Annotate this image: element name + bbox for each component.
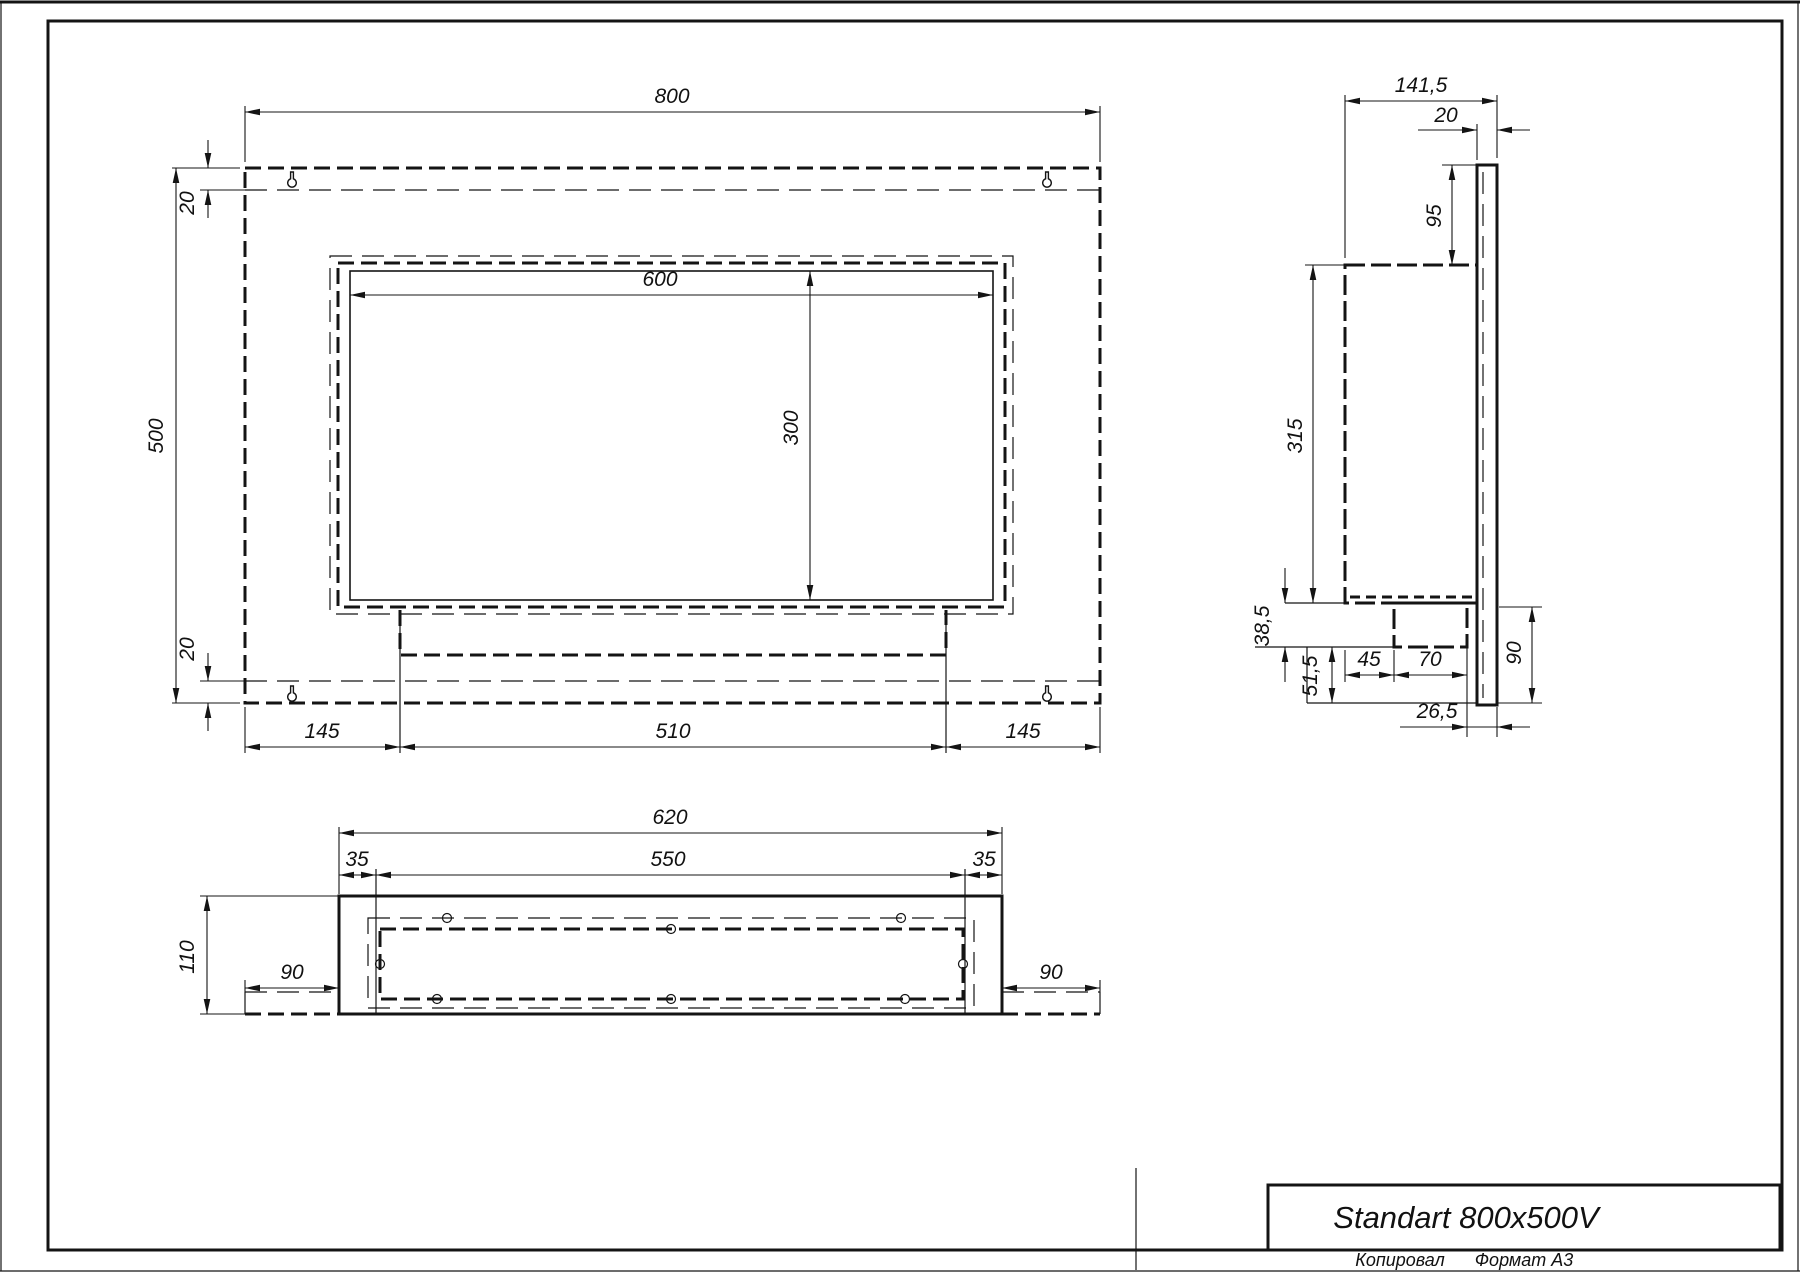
sheet-borders [0, 2, 1800, 1271]
side-dim-tray-depth: 70 [1418, 648, 1442, 671]
bottom-dim-90-lines [245, 980, 1100, 992]
side-dim-back-offset: 26,5 [1416, 700, 1458, 723]
side-dim-20-lines [1418, 124, 1530, 160]
technical-drawing: 800 500 20 20 600 300 [0, 0, 1800, 1273]
screw-holes [376, 914, 968, 1004]
front-dim-bottom-right: 145 [1005, 720, 1040, 743]
side-dim-plate-thickness: 20 [1433, 104, 1458, 127]
bottom-dim-110-lines [200, 896, 339, 1014]
side-dim-overall-depth: 141,5 [1395, 74, 1448, 97]
bottom-dim-flange-left: 90 [280, 961, 304, 984]
front-dim-500-lines [172, 168, 240, 703]
keyhole-icon [1043, 172, 1052, 187]
front-dim-20bot-lines [200, 653, 245, 731]
keyhole-icon [1043, 686, 1052, 701]
front-dim-20top-lines [200, 140, 245, 218]
keyhole-icon [288, 686, 297, 701]
front-view: 800 500 20 20 600 300 [145, 85, 1100, 753]
bottom-dim-depth: 110 [176, 940, 199, 974]
front-dim-800-lines [245, 106, 1100, 162]
side-dim-tray-setback: 45 [1357, 648, 1381, 671]
format-label: Формат A3 [1475, 1250, 1574, 1270]
bottom-dim-inner-width: 550 [650, 848, 685, 871]
drawing-sheet: 800 500 20 20 600 300 [0, 0, 1800, 1273]
front-dim-opening-width: 600 [642, 268, 677, 291]
keyhole-icon [288, 172, 297, 187]
front-dim-height: 500 [145, 418, 168, 453]
title-block: Standart 800x500V Копировал Формат A3 [1136, 1168, 1780, 1270]
side-dim-1415-lines [1345, 95, 1497, 258]
side-dim-flange-height: 90 [1503, 641, 1526, 665]
side-dim-95-lines [1442, 165, 1477, 265]
drawing-title: Standart 800x500V [1333, 1200, 1602, 1235]
bottom-dim-side-right: 35 [972, 848, 996, 871]
bottom-dim-side-left: 35 [345, 848, 369, 871]
bottom-dim-outer-width: 620 [652, 806, 687, 829]
side-dim-step-height: 38,5 [1251, 605, 1274, 646]
front-dim-width: 800 [654, 85, 689, 108]
side-dim-top-gap: 95 [1423, 204, 1446, 228]
side-dim-315-lines [1305, 265, 1345, 603]
front-dim-opening-height: 300 [780, 410, 803, 445]
front-dim-top-offset: 20 [176, 191, 199, 216]
side-view: 141,5 20 95 315 38,5 51,5 [1251, 74, 1542, 737]
bottom-dim-flange-right: 90 [1039, 961, 1063, 984]
front-dim-bottom-left: 145 [304, 720, 339, 743]
front-dim-bottom-offset: 20 [176, 637, 199, 662]
front-dim-bottom-center: 510 [655, 720, 690, 743]
side-dim-body-height: 315 [1284, 418, 1307, 453]
bottom-view: 620 35 550 35 110 90 90 [176, 806, 1100, 1014]
side-dim-lower-height: 51,5 [1299, 655, 1322, 696]
copied-label: Копировал [1355, 1250, 1445, 1270]
